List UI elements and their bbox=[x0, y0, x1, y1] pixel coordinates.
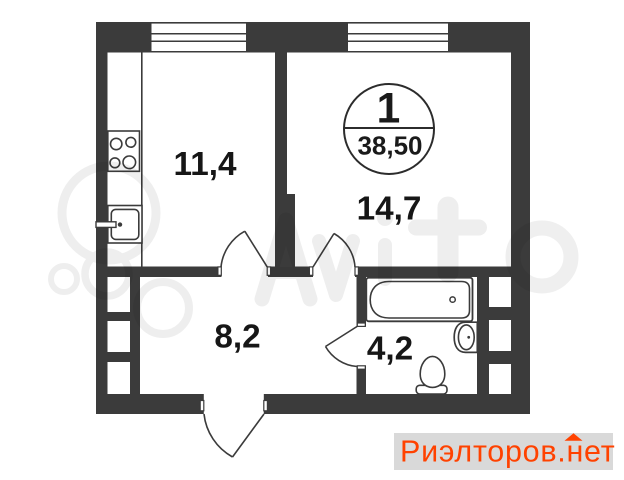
svg-text:11,4: 11,4 bbox=[174, 146, 237, 183]
svg-text:Риэлторов.нет: Риэлторов.нет bbox=[400, 435, 615, 469]
svg-text:4,2: 4,2 bbox=[367, 331, 413, 368]
svg-text:1: 1 bbox=[377, 86, 401, 133]
svg-text:38,50: 38,50 bbox=[357, 130, 422, 160]
svg-text:8,2: 8,2 bbox=[214, 318, 260, 355]
